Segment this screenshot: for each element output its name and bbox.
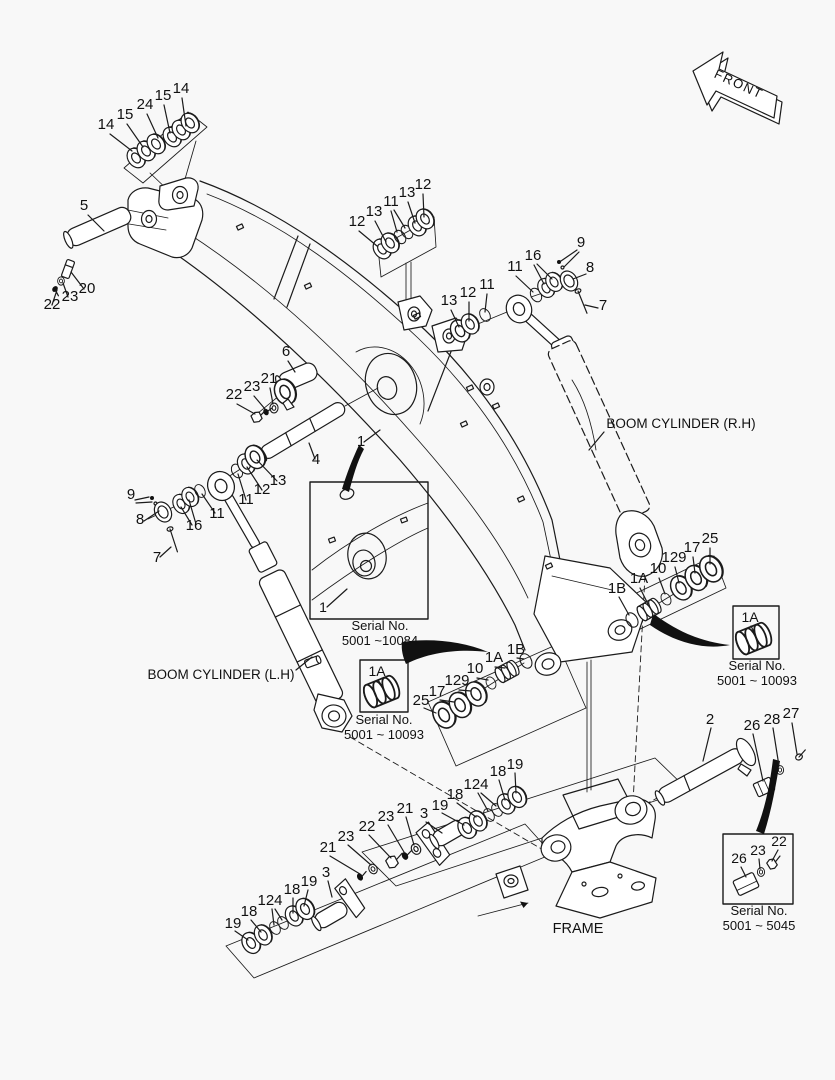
callout-124: 124 [257,892,282,909]
callout-12: 12 [254,481,271,498]
serial-boom-detail-line1: Serial No. [351,618,408,633]
callout-4: 4 [312,451,320,468]
callout-26: 26 [731,850,747,866]
callout-13: 13 [399,184,416,201]
callout-11: 11 [238,491,254,508]
callout-15: 15 [117,106,134,123]
callout-1: 1 [319,599,327,615]
serial-boom-detail-line2: 5001 ~10084 [342,633,418,648]
callout-22: 22 [226,386,243,403]
callout-11: 11 [383,193,399,210]
callout-25: 25 [702,530,719,547]
callout-14: 14 [98,116,115,133]
callout-1A: 1A [368,663,386,679]
serial-bushing-center-line1: Serial No. [355,712,412,727]
callout-1A: 1A [485,649,503,666]
callout-23: 23 [378,808,395,825]
callout-10: 10 [467,660,484,677]
callout-2: 2 [706,711,714,728]
callout-1B: 1B [507,641,525,658]
callout-7: 7 [153,549,161,566]
boom-cylinder-rh-drawing [516,305,663,576]
callout-15: 15 [155,87,172,104]
boom-cylinder-lh-label: BOOM CYLINDER (L.H) [147,667,294,682]
callout-12: 12 [349,213,366,230]
callout-22: 22 [771,833,787,849]
callout-21: 21 [320,839,337,856]
callout-18: 18 [284,881,301,898]
serial-bushing-right-line1: Serial No. [728,658,785,673]
callout-14: 14 [173,80,190,97]
callout-18: 18 [490,763,507,780]
callout-23: 23 [62,288,79,305]
callout-18: 18 [447,786,464,803]
callout-11: 11 [479,276,495,293]
inset-box-boom-detail [310,482,428,619]
callout-26: 26 [744,717,761,734]
callout-12: 12 [460,284,477,301]
callout-3: 3 [420,805,428,822]
callout-21: 21 [397,800,414,817]
callout-9: 9 [577,234,585,251]
callout-22: 22 [359,818,376,835]
callout-9: 9 [127,486,135,503]
frame-label: FRAME [553,921,604,937]
callout-25: 25 [413,692,430,709]
callout-19: 19 [225,915,242,932]
boom-cylinder-rh-label: BOOM CYLINDER (R.H) [606,416,755,431]
callout-7: 7 [599,297,607,314]
callout-11: 11 [507,258,523,275]
serial-frame-pin-line1: Serial No. [730,903,787,918]
callout-124: 124 [463,776,488,793]
exploded-parts-diagram: 1415241514520232212131113121312111116987… [0,0,835,1080]
pin-2 [653,735,808,806]
serial-bushing-right-line2: 5001 ~ 10093 [717,673,797,688]
callout-13: 13 [441,292,458,309]
callout-22: 22 [44,296,61,313]
callout-20: 20 [79,280,96,297]
callout-16: 16 [186,517,203,534]
callout-3: 3 [322,864,330,881]
callout-17: 17 [429,683,446,700]
callout-1B: 1B [608,580,626,597]
callout-6: 6 [282,343,290,360]
callout-28: 28 [764,711,781,728]
callout-8: 8 [586,259,594,276]
callout-12: 12 [415,176,432,193]
callout-16: 16 [525,247,542,264]
callout-23: 23 [244,378,261,395]
callout-21: 21 [261,370,278,387]
callout-1: 1 [357,433,365,450]
serial-bushing-center-line2: 5001 ~ 10093 [344,727,424,742]
callout-11: 11 [209,505,225,522]
callout-18: 18 [241,903,258,920]
callout-13: 13 [366,203,383,220]
pin-3-lower [310,878,367,932]
callout-23: 23 [338,828,355,845]
callout-5: 5 [80,197,88,214]
callout-19: 19 [507,756,524,773]
callout-1A: 1A [630,570,648,587]
callout-23: 23 [750,842,766,858]
callout-17: 17 [684,539,701,556]
callout-13: 13 [270,472,287,489]
callout-24: 24 [137,96,154,113]
parts-diagram-page: 1415241514520232212131113121312111116987… [0,0,835,1080]
callout-27: 27 [783,705,800,722]
callout-1A: 1A [741,609,759,625]
callout-8: 8 [136,511,144,528]
boom-cylinder-lh-drawing [223,493,352,732]
serial-frame-pin-line2: 5001 ~ 5045 [723,918,796,933]
callout-19: 19 [301,873,318,890]
